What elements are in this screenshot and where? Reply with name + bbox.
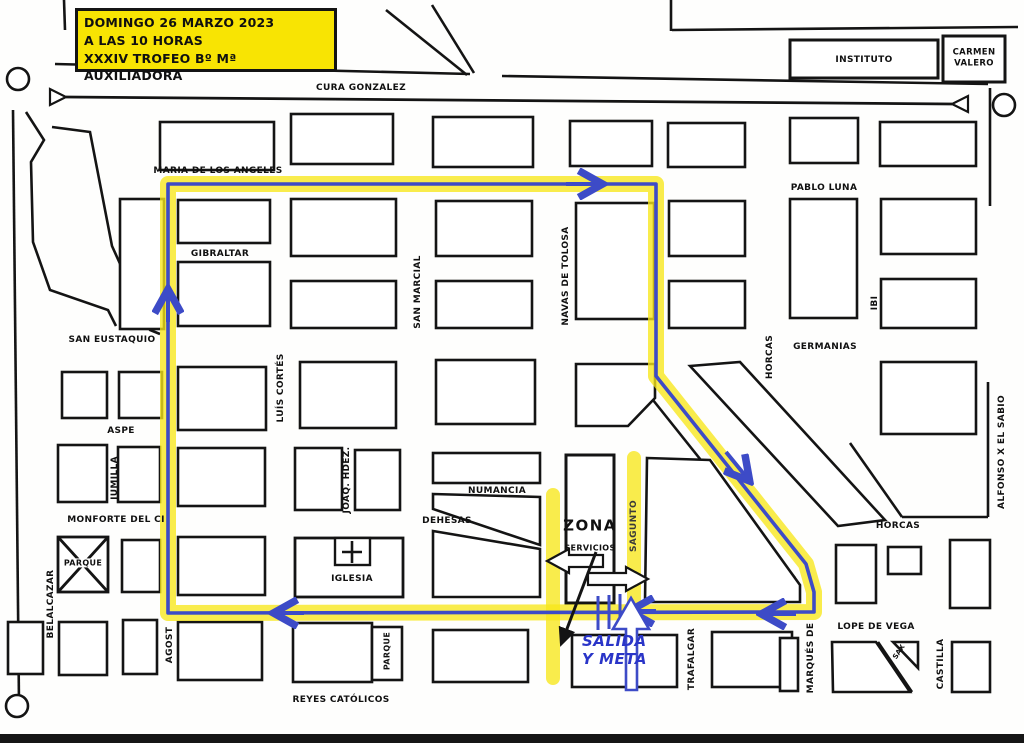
street-label-lope-de-vega: LOPE DE VEGA bbox=[837, 622, 914, 632]
street-label-aspe: ASPE bbox=[107, 426, 135, 436]
street-label-pablo-luna: PABLO LUNA bbox=[791, 183, 858, 193]
zona-label: ZONA bbox=[563, 517, 617, 534]
street-label-sagunto: SAGUNTO bbox=[629, 500, 639, 552]
instituto-label: INSTITUTO bbox=[835, 55, 892, 65]
street-label-san-eustaquio: SAN EUSTAQUIO bbox=[69, 335, 156, 345]
event-name: XXXIV TROFEO Bº Mª AUXILIADORA bbox=[84, 50, 328, 86]
street-label-san-marcial: SAN MARCIAL bbox=[413, 255, 423, 328]
zona-servicios-label: SERVICIOS bbox=[564, 543, 615, 552]
street-label-maria-de-los-angeles: MARIA DE LOS ANGELES bbox=[153, 166, 282, 176]
roundabout-circle-northwest bbox=[7, 68, 29, 90]
event-info-box: DOMINGO 26 MARZO 2023 A LAS 10 HORAS XXX… bbox=[75, 8, 337, 72]
race-route-map: DOMINGO 26 MARZO 2023 A LAS 10 HORAS XXX… bbox=[0, 0, 1024, 743]
parque-small-label: PARQUE bbox=[382, 632, 391, 670]
roundabout-circle-southwest bbox=[6, 695, 28, 717]
street-label-cura-gonzalez: CURA GONZALEZ bbox=[316, 83, 406, 93]
street-label-agost: AGOST bbox=[165, 627, 175, 663]
street-label-alfonso-x-el-sabio: ALFONSO X EL SABIO bbox=[997, 395, 1007, 509]
church-block bbox=[295, 538, 403, 597]
street-label-belalcazar: BELALCAZAR bbox=[46, 570, 56, 639]
parque-label: PARQUE bbox=[62, 558, 104, 567]
street-label-navas-de-tolosa: NAVAS DE TOLOSA bbox=[561, 226, 571, 325]
street-label-marques-de: MARQUÉS DE bbox=[806, 623, 816, 694]
scan-edge-bar bbox=[0, 734, 1024, 743]
street-label-gibraltar: GIBRALTAR bbox=[191, 249, 249, 259]
street-label-monforte-del-cid: MONFORTE DEL CI bbox=[67, 515, 165, 525]
event-time: A LAS 10 HORAS bbox=[84, 32, 328, 50]
street-label-luis-cortes: LUÍS CORTÉS bbox=[276, 353, 286, 422]
iglesia-label: IGLESIA bbox=[331, 574, 373, 584]
carmen-valero-label: CARMENVALERO bbox=[953, 47, 996, 68]
avenue-end-triangle-west bbox=[50, 89, 66, 105]
street-label-horcas-right: HORCAS bbox=[876, 521, 920, 531]
street-label-dehesas: DEHESAS bbox=[422, 516, 472, 526]
roundabout-circle-northeast bbox=[993, 94, 1015, 116]
event-date: DOMINGO 26 MARZO 2023 bbox=[84, 14, 328, 32]
street-label-horcas-upper: HORCAS bbox=[765, 335, 775, 379]
street-label-castilla: CASTILLA bbox=[936, 639, 946, 690]
street-label-reyes-catolicos: REYES CATÓLICOS bbox=[292, 695, 389, 705]
street-label-trafalgar: TRAFALGAR bbox=[687, 628, 697, 690]
street-label-numancia: NUMANCIA bbox=[468, 486, 526, 496]
avenue-end-triangle-east bbox=[952, 96, 968, 112]
street-label-germanias: GERMANIAS bbox=[793, 342, 857, 352]
start-finish-label: SALIDA Y META bbox=[582, 632, 647, 668]
street-label-jumilla: JUMILLA bbox=[110, 456, 120, 500]
street-label-joaq-hdez: JOAQ. HDEZ. bbox=[342, 447, 352, 514]
street-label-ibi: IBI bbox=[870, 296, 880, 311]
